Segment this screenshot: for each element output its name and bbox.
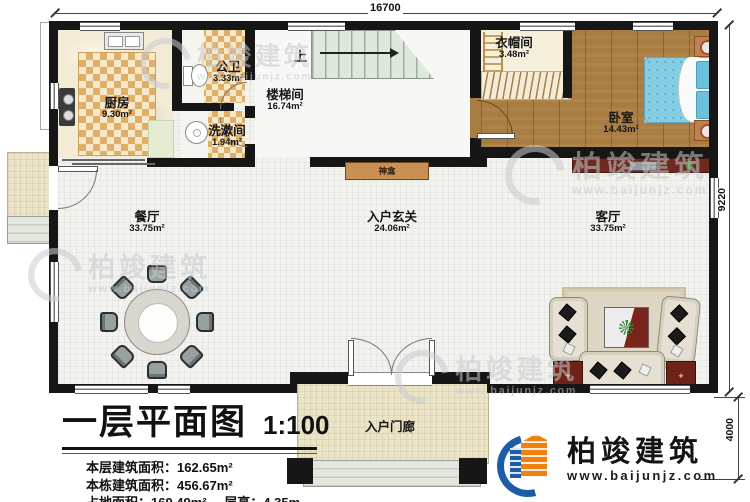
entry-porch-steps <box>303 460 481 487</box>
stat-building-area: 本栋建筑面积：456.67m² <box>86 477 330 495</box>
plant-icon <box>685 161 693 169</box>
stat-floor-area: 本层建筑面积：162.65m² <box>86 459 330 477</box>
kitchen-slider-door <box>72 163 155 165</box>
wall-kitchen-bath <box>172 30 182 110</box>
window <box>50 262 59 322</box>
dining-chair <box>147 361 167 379</box>
title-stats: 本层建筑面积：162.65m² 本栋建筑面积：456.67m² 占地面积：169… <box>86 459 330 502</box>
dining-table <box>124 289 190 355</box>
plant-icon <box>619 320 634 335</box>
tv-cabinet <box>572 158 716 173</box>
title-block: 一层平面图1:100 本层建筑面积：162.65m² 本栋建筑面积：456.67… <box>62 394 330 502</box>
stair-arrow-line <box>320 52 390 54</box>
sofa-cushion <box>670 304 688 322</box>
sofa-cushion <box>589 361 607 379</box>
logo-building-orange <box>521 434 547 476</box>
sofa-cushion <box>558 325 576 343</box>
dim-right-value: 9220 <box>716 188 728 211</box>
sofa-pillow <box>638 363 651 376</box>
sink-basin-right <box>125 36 140 47</box>
room-label-bedroom: 卧室 14.43m² <box>581 111 661 136</box>
plan-title: 一层平面图 <box>62 403 247 442</box>
brand-logo-icon <box>497 430 559 490</box>
bed-pillow <box>696 61 710 89</box>
side-porch-steps <box>7 216 51 244</box>
dim-line-right <box>729 25 730 392</box>
window <box>75 385 148 394</box>
window <box>80 22 120 31</box>
wall-bedroom-bottom <box>470 147 718 158</box>
window <box>590 385 690 394</box>
wall-kitchen-bottom <box>147 158 255 167</box>
stove-burner <box>63 110 74 121</box>
room-label-kitchen: 厨房 9.30m² <box>77 96 157 121</box>
room-label-bath: 公卫 3.33m² <box>188 60 268 85</box>
sofa-pillow <box>562 342 575 355</box>
wall-top <box>49 21 718 30</box>
window <box>288 22 345 31</box>
dining-table-top <box>138 303 178 343</box>
dining-chair <box>196 312 214 332</box>
kitchen-sink <box>104 32 144 50</box>
logo-building-blue <box>510 448 521 478</box>
dining-chair <box>147 265 167 283</box>
dim-porch-value: 4000 <box>724 418 736 441</box>
room-label-stairhall: 楼梯间 16.74m² <box>245 88 325 113</box>
room-label-porch: 入户门廊 <box>340 420 440 434</box>
stat-footprint-row: 占地面积：169.49m² 层高：4.35m <box>86 494 330 502</box>
entry-door-leaf <box>429 340 435 376</box>
kitchen-stove <box>59 88 75 126</box>
window <box>50 83 59 109</box>
porch-pillar-right <box>459 458 487 484</box>
window <box>158 385 190 394</box>
sofa-cushion <box>613 361 631 379</box>
room-label-dining: 餐厅 33.75m² <box>107 210 187 235</box>
room-label-cloak: 衣帽间 3.48m² <box>474 36 554 61</box>
stair-arrow-head <box>390 48 399 58</box>
side-porch-floor <box>7 152 51 218</box>
porch-wall-left <box>290 372 348 384</box>
brand-site: www.baijunjz.com <box>567 468 718 483</box>
sofa-cushion <box>558 303 576 321</box>
sink-basin-left <box>108 36 123 47</box>
entry-door-leaf <box>348 340 354 376</box>
brand-logo: 柏竣建筑 www.baijunjz.com <box>497 430 718 490</box>
stove-burner <box>63 94 74 105</box>
stairs-up-label: 上 <box>294 46 307 65</box>
side-door-opening <box>49 166 58 210</box>
bedroom-door-leaf <box>477 133 515 139</box>
plan-scale: 1:100 <box>263 410 330 440</box>
dining-chair <box>100 312 118 332</box>
dim-ext <box>714 397 745 398</box>
title-underline-thick <box>62 447 317 450</box>
window <box>633 22 673 31</box>
brand-name: 柏竣建筑 <box>567 437 718 467</box>
stat-height: 层高：4.35m <box>224 495 300 502</box>
wall-cloak-right <box>563 30 572 98</box>
shrine-label: 神龛 <box>378 166 395 176</box>
dim-top-value: 16700 <box>368 2 403 14</box>
coffee-table <box>604 307 649 348</box>
room-label-living: 客厅 33.75m² <box>568 210 648 235</box>
shrine-box: 神龛 <box>345 162 429 180</box>
bed-pillow <box>696 91 710 119</box>
cloak-hanger-rail <box>481 71 571 100</box>
kitchen-slider-door <box>62 159 145 161</box>
tv-icon <box>629 161 657 171</box>
sofa-cushion <box>668 327 686 345</box>
title-underline-thin <box>62 453 317 454</box>
stat-footprint: 占地面积：169.49m² <box>86 495 207 502</box>
dim-line-porch <box>738 397 739 480</box>
room-label-foyer: 入户玄关 24.06m² <box>352 210 432 235</box>
window <box>520 22 575 31</box>
kitchen-mat <box>148 120 174 158</box>
floor-plan-canvas: ✦ ✦ 神龛 厨房 9 <box>0 0 750 502</box>
porch-wall-right <box>432 372 490 384</box>
sofa-pillow <box>670 344 684 358</box>
room-label-laundry: 洗漱间 1.94m² <box>187 124 267 149</box>
